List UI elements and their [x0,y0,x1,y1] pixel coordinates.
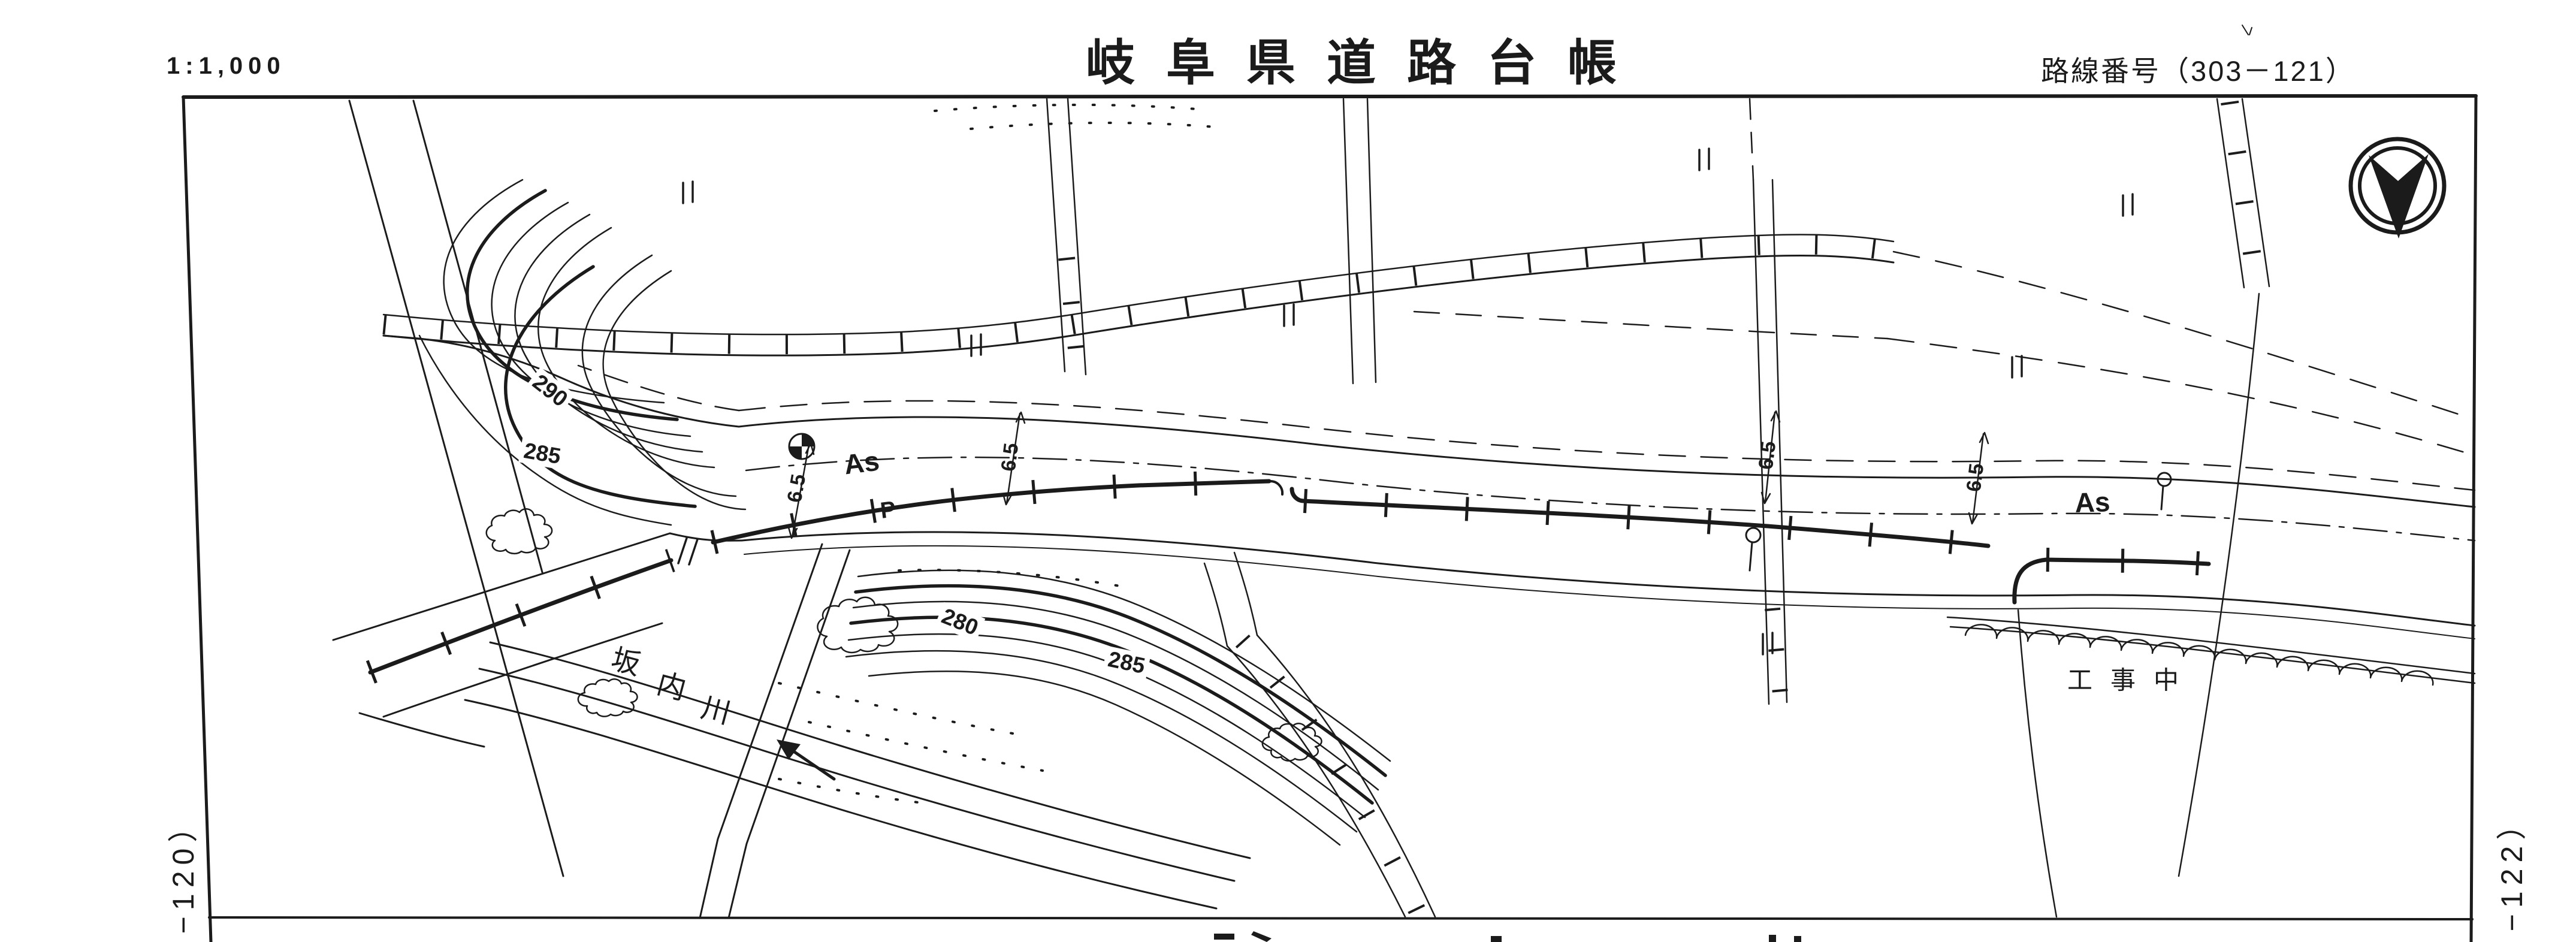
adjacent-sheet-ref-right: −122） [2488,804,2531,932]
pavement-label-as-left: As [842,445,881,481]
construction-area-boundary [2018,294,2259,917]
contour-lines-middle [846,570,1390,845]
river-flow-arrow-icon [777,739,834,779]
road-width-label-2: 6.5 [997,442,1023,473]
page-title: 岐阜県道路台帳 [1086,23,1648,94]
north-arrow-icon [2351,139,2444,238]
road-width-label-4: 6.5 [1962,462,1989,493]
contour-lines-upper-left [419,180,745,525]
river-lines [360,642,1250,908]
route-number-label: 路線番号（303－121） [2041,48,2355,89]
width-dimension-arrows [789,411,1988,538]
adjacent-sheet-ref-left: −120） [159,807,203,934]
embankment-road-se [1204,552,1435,917]
paddy-field-icons [683,149,2133,654]
chainage-line [370,481,2209,672]
construction-label: 工事中 [2067,660,2197,697]
retaining-wall [1947,617,2475,685]
map-scale: 1:1,000 [167,53,286,80]
stray-mark [2242,25,2252,35]
road-width-label-1: 6.5 [783,472,811,504]
section-boundary-left [349,101,563,876]
upper-road [383,234,2475,455]
bottom-text-fragments [1214,931,1801,942]
road-width-label-3: 6.5 [1754,440,1781,471]
main-road [383,336,2475,639]
pavement-label-p: P [879,497,897,524]
side-roads [1047,99,2269,704]
map-canvas [0,0,2576,942]
benchmark-icon [789,434,814,459]
pavement-label-as-right: As [2074,485,2111,519]
road-ledger-sheet: 1:1,000 岐阜県道路台帳 路線番号（303－121） −120） −122… [0,0,2576,942]
